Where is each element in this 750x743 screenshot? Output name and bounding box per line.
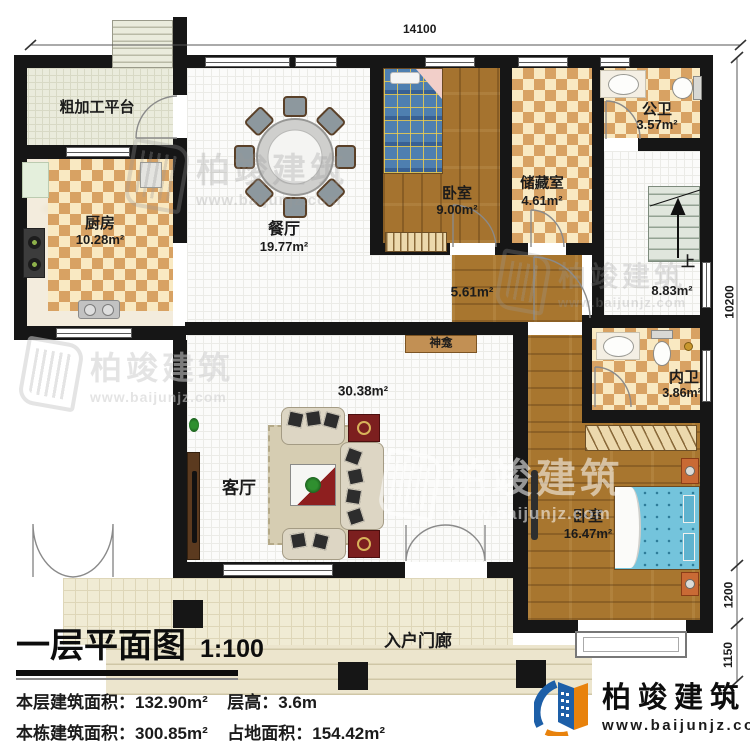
wardrobe [385, 232, 447, 252]
living-area: 30.38m² [338, 385, 388, 400]
room-area-kitchen: 10.28m² [76, 233, 124, 247]
washbasin-icon [603, 336, 634, 357]
dim-label-height-bay: 1200 [721, 579, 735, 612]
room-area-master: 16.47m² [564, 527, 612, 541]
tv-cabinet [187, 452, 200, 560]
room-area-private-bath: 3.86m² [662, 387, 702, 401]
room-label-porch: 入户门廊 [384, 633, 452, 652]
window [66, 147, 130, 157]
wall-segment [173, 138, 187, 243]
wall-segment [14, 55, 112, 68]
toilet-icon [672, 74, 702, 102]
brand-website: www.baijunjz.com [602, 717, 750, 734]
toilet-icon [650, 330, 676, 368]
wall-segment [686, 620, 713, 633]
window [295, 57, 337, 67]
staircase [648, 186, 700, 262]
wall-segment [173, 340, 187, 562]
window [702, 350, 711, 402]
dim-tick [731, 560, 743, 571]
dim-label-height-main: 10200 [723, 282, 737, 321]
stat-value: 154.42m² [312, 724, 385, 743]
blanket-fold [615, 487, 641, 568]
washbasin-icon [608, 74, 639, 95]
fridge [140, 162, 162, 188]
dim-label-height-porch: 1150 [721, 639, 735, 671]
room-label-public-bath: 公卫 [642, 102, 672, 119]
wall-segment [582, 410, 713, 423]
title-rule-thin [16, 678, 238, 680]
wall-segment [173, 17, 187, 68]
stat-label: 本层建筑面积： [16, 693, 135, 712]
room-area-dining: 19.77m² [260, 240, 308, 254]
hallway-floor [187, 255, 452, 322]
stove [23, 228, 45, 278]
end-table [348, 530, 380, 558]
bed-double [614, 486, 700, 570]
wall-segment [173, 68, 187, 95]
wall-segment [700, 55, 713, 633]
hallway-area: 5.61m² [451, 286, 494, 301]
stair-up-label: 上 [681, 254, 695, 269]
wall-segment [513, 322, 528, 632]
suite-vestibule-floor [528, 335, 582, 423]
room-label-living: 客厅 [222, 480, 256, 499]
brand-name: 柏竣建筑 [602, 674, 750, 716]
brand-logo: 柏竣建筑 www.baijunjz.com [534, 672, 750, 736]
coffee-table [290, 464, 336, 506]
stat-label: 本栋建筑面积： [16, 724, 135, 743]
wall-segment [495, 243, 528, 255]
page-title: 一层平面图 [16, 618, 186, 667]
sofa [281, 407, 345, 445]
dim-tick [25, 40, 36, 50]
pillow [683, 533, 695, 561]
room-label-master: 卧室 [573, 509, 603, 526]
wall-segment [370, 68, 383, 243]
window [205, 57, 290, 67]
wall-segment [566, 243, 592, 255]
watermark-logo-icon [17, 335, 86, 412]
window [600, 57, 630, 67]
double-door-terrace [33, 524, 113, 577]
room-area-public-bath: 3.57m² [636, 118, 677, 132]
dim-tick [735, 40, 746, 50]
floor-drain-icon [684, 342, 693, 351]
stat-value: 132.90m² [135, 693, 208, 712]
dining-table-set [233, 95, 358, 220]
floor-plan-page: 14100 10200 1200 1150 粗加工平台 厨房 10.28m² 餐… [0, 0, 750, 743]
window [425, 57, 475, 67]
wall-segment [405, 322, 515, 335]
tv-icon [192, 471, 197, 543]
window [56, 328, 132, 338]
room-label-kitchen: 厨房 [85, 216, 115, 233]
plant-icon [305, 477, 321, 493]
dim-label-width: 14100 [400, 22, 439, 36]
tv-board [531, 470, 538, 540]
sofa [340, 442, 384, 530]
stair-hall-area: 8.83m² [651, 284, 692, 298]
platform-entry-steps [112, 20, 173, 68]
wall-segment [582, 328, 592, 423]
stat-value: 300.85m² [135, 724, 208, 743]
bath-sink-counter [596, 332, 640, 360]
window [223, 564, 333, 576]
blanket-fold [416, 69, 442, 99]
dim-tick [731, 52, 743, 63]
room-area-bedroom-top: 9.00m² [436, 203, 477, 217]
drawing-scale: 1:100 [200, 635, 264, 664]
kitchen-counter-appliance [22, 162, 49, 198]
room-label-bedroom-top: 卧室 [442, 186, 472, 203]
bay-window-inner-line [583, 637, 679, 652]
window [702, 262, 711, 308]
title-rule [16, 670, 238, 676]
title-block: 一层平面图 1:100 本层建筑面积：132.90m² 层高：3.6m 本栋建筑… [16, 618, 385, 743]
room-label-private-bath: 内卫 [669, 370, 699, 387]
plant-icon [189, 418, 199, 432]
wall-segment [592, 68, 604, 322]
room-label-platform: 粗加工平台 [59, 100, 134, 117]
window [518, 57, 568, 67]
kitchen-sink [78, 300, 120, 319]
wall-segment [513, 620, 578, 633]
dim-tick [731, 618, 743, 629]
wall-segment [500, 68, 512, 243]
stat-value: 3.6m [278, 693, 317, 712]
wall-segment [582, 315, 713, 328]
room-area-storage: 4.61m² [521, 194, 562, 208]
sofa [282, 528, 346, 560]
wall-segment [487, 562, 515, 578]
storage-floor [512, 68, 592, 243]
baijun-logo-icon [534, 672, 594, 736]
room-label-dining: 餐厅 [268, 221, 300, 239]
nightstand [681, 572, 699, 596]
bed-single [383, 68, 443, 174]
wardrobe [585, 425, 697, 451]
stat-label: 占地面积： [227, 724, 312, 743]
room-label-storage: 储藏室 [520, 177, 564, 193]
wall-segment [185, 322, 405, 335]
shrine-label: 神龛 [430, 338, 453, 351]
stat-label: 层高： [227, 693, 278, 712]
pillow [683, 495, 695, 523]
nightstand [681, 458, 699, 484]
end-table [348, 414, 380, 442]
bath-sink-counter [600, 70, 646, 98]
